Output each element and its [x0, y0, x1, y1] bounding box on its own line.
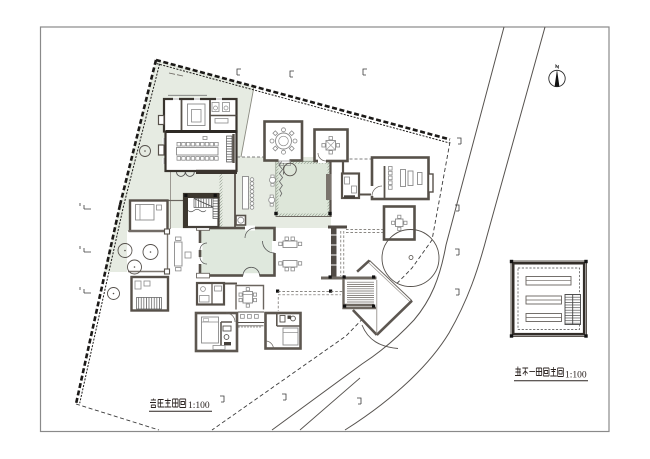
svg-text:1:100: 1:100 — [565, 371, 587, 381]
svg-text:1:100: 1:100 — [188, 401, 210, 411]
